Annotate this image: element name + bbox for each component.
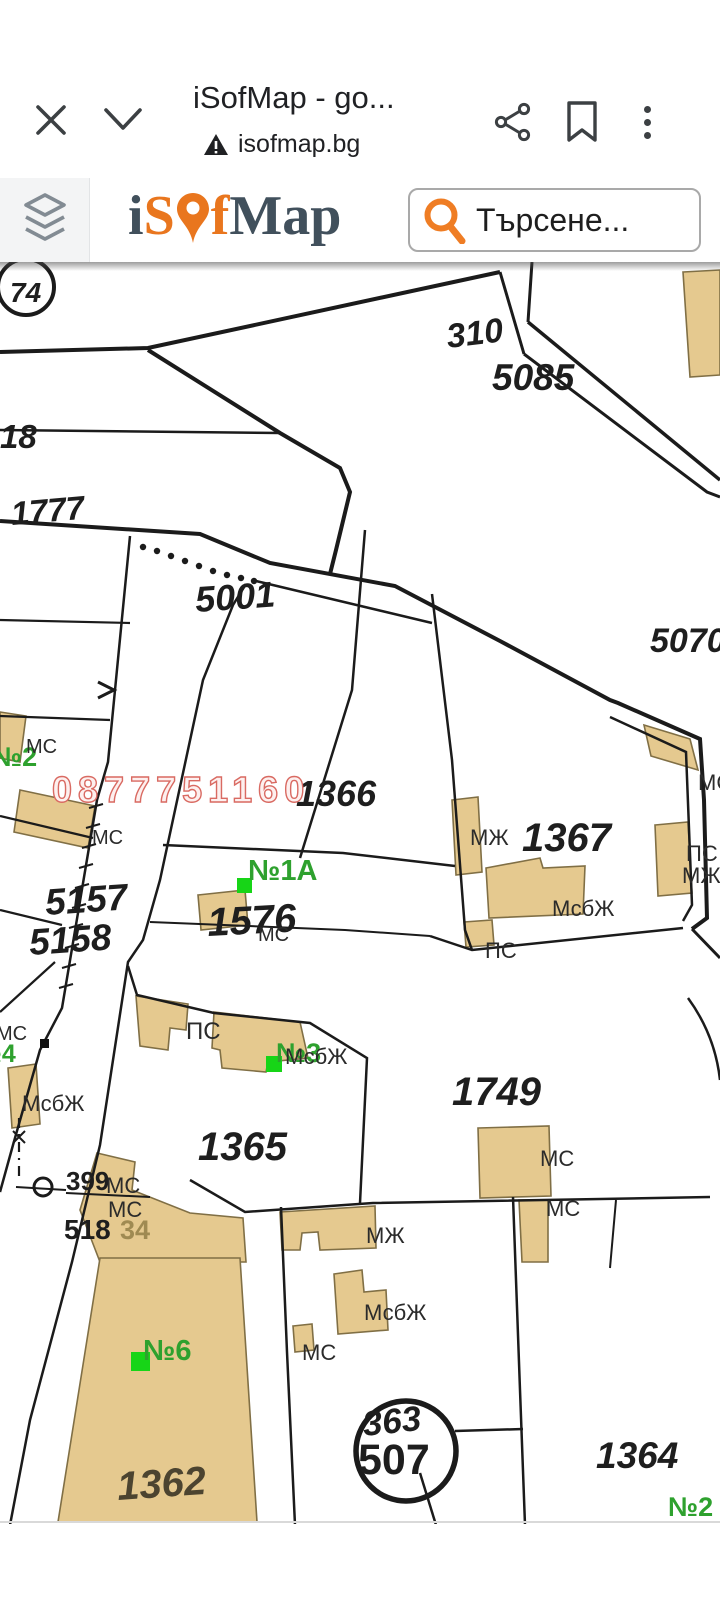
isofmap-header: iSfMap <box>0 178 720 262</box>
parcel-label: 5085 <box>492 357 576 398</box>
building-label: МЖ <box>470 825 509 850</box>
building <box>519 1200 548 1262</box>
parcel-label: 1362 <box>116 1459 208 1509</box>
header-shadow <box>0 262 720 271</box>
map-bottom-edge <box>0 1521 720 1523</box>
isofmap-logo[interactable]: iSfMap <box>128 184 341 258</box>
parcel-label: 5001 <box>194 573 277 619</box>
overflow-menu-icon[interactable] <box>644 100 651 145</box>
address-label: №1А <box>248 855 317 887</box>
chevron-down-icon[interactable] <box>102 106 144 134</box>
parcel-label: 507 <box>358 1436 430 1484</box>
logo-part: f <box>211 184 230 248</box>
building-label: МсбЖ <box>285 1044 348 1069</box>
share-icon[interactable] <box>493 102 533 142</box>
address-label: №6 <box>143 1335 191 1367</box>
building <box>644 725 698 770</box>
point-label: 34 <box>120 1215 150 1245</box>
building-label: МС <box>258 924 289 946</box>
warning-icon <box>203 133 229 157</box>
parcel-label: 1777 <box>9 489 87 532</box>
parcel-label: 5157 <box>44 876 131 923</box>
building-label: МС <box>698 770 720 795</box>
address-label: №2 <box>668 1492 713 1522</box>
map-canvas: 74 310 5085 18 1777 5001 5070 №2 МС 1366… <box>0 262 720 1524</box>
logo-part: Map <box>229 184 341 248</box>
parcel-label: 1364 <box>596 1435 678 1476</box>
parcel-label: 310 <box>444 311 505 356</box>
point-label: 399 <box>66 1166 109 1196</box>
parcel-label: 1367 <box>522 816 613 860</box>
building-label: МЖ <box>682 863 720 888</box>
direction-arrow <box>98 682 114 698</box>
url-bar[interactable]: isofmap.bg <box>203 130 360 159</box>
layers-icon <box>22 192 68 248</box>
building-label: ПС <box>186 1018 221 1045</box>
cadastral-map[interactable]: 74 310 5085 18 1777 5001 5070 №2 МС 1366… <box>0 262 720 1524</box>
logo-part: S <box>144 184 175 248</box>
layers-button[interactable] <box>0 178 90 262</box>
building-label: МС <box>302 1340 336 1365</box>
building <box>683 270 720 377</box>
building-label: МС <box>106 1173 140 1198</box>
parcel-label: 74 <box>10 277 42 308</box>
close-icon[interactable] <box>33 102 69 138</box>
search-input[interactable] <box>474 201 673 240</box>
building-label: МС <box>92 827 123 849</box>
point-label: 518 <box>64 1214 111 1245</box>
building <box>280 1206 376 1250</box>
map-pin-icon <box>176 192 210 258</box>
building-label: ПС <box>485 938 517 963</box>
survey-point <box>40 1039 49 1048</box>
page-title: iSofMap - go... <box>193 80 395 116</box>
url-text: isofmap.bg <box>238 130 360 159</box>
search-icon <box>422 196 466 244</box>
parcel-label: 18 <box>0 418 37 455</box>
building-label: МЖ <box>366 1223 405 1248</box>
building-label: МсбЖ <box>364 1300 427 1325</box>
parcel-label: 5070 <box>650 622 720 660</box>
watermark-phone: 0877751160 <box>52 769 310 810</box>
building-label: МС <box>26 736 57 758</box>
search-box[interactable] <box>408 188 701 252</box>
browser-custom-tab-bar: iSofMap - go... isofmap.bg <box>0 62 720 178</box>
building-label: МС <box>546 1196 580 1221</box>
building-label: МсбЖ <box>552 896 615 921</box>
address-label: №4 <box>0 1040 16 1068</box>
parcel-label: 1749 <box>452 1070 542 1114</box>
parcel-label: 5158 <box>28 916 113 963</box>
logo-part: i <box>128 184 144 248</box>
building-label: МС <box>540 1146 574 1171</box>
parcel-label: 1365 <box>198 1125 288 1169</box>
building-label: МсбЖ <box>22 1091 85 1116</box>
bookmark-icon[interactable] <box>565 100 599 144</box>
